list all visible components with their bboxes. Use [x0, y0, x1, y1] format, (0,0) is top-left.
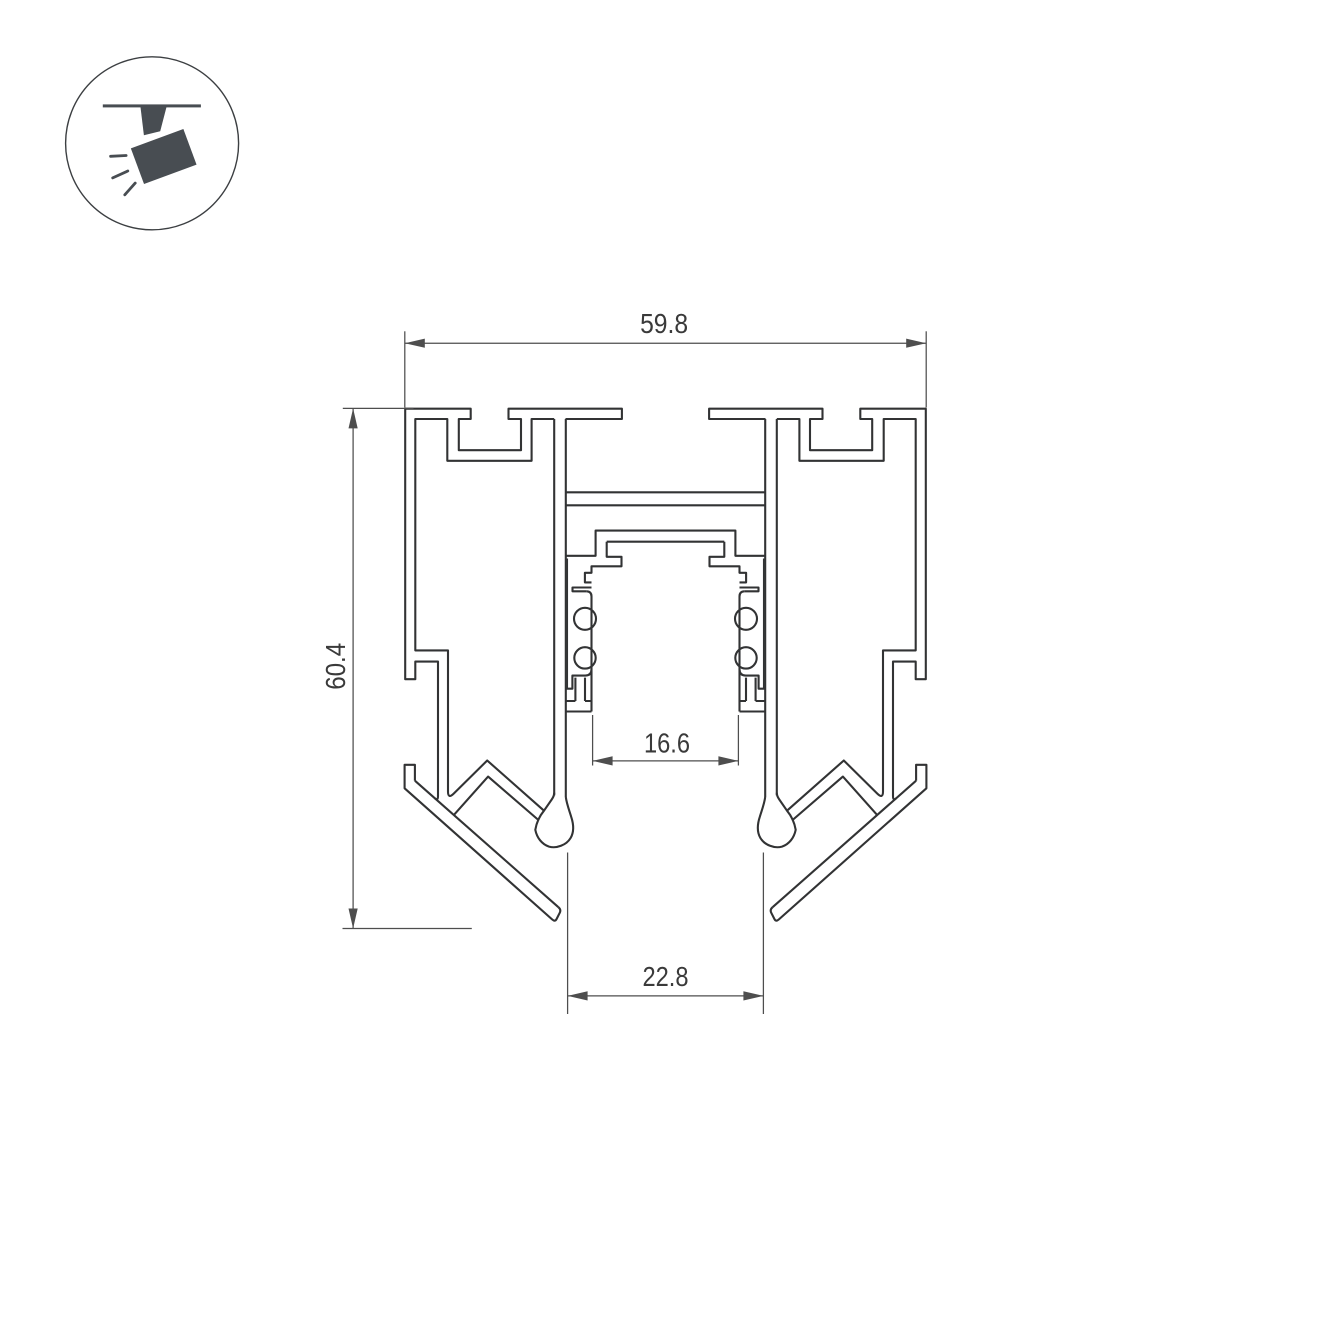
- svg-text:16.6: 16.6: [644, 727, 690, 758]
- svg-text:60.4: 60.4: [320, 643, 351, 690]
- svg-text:59.8: 59.8: [640, 308, 688, 339]
- svg-text:22.8: 22.8: [643, 961, 689, 992]
